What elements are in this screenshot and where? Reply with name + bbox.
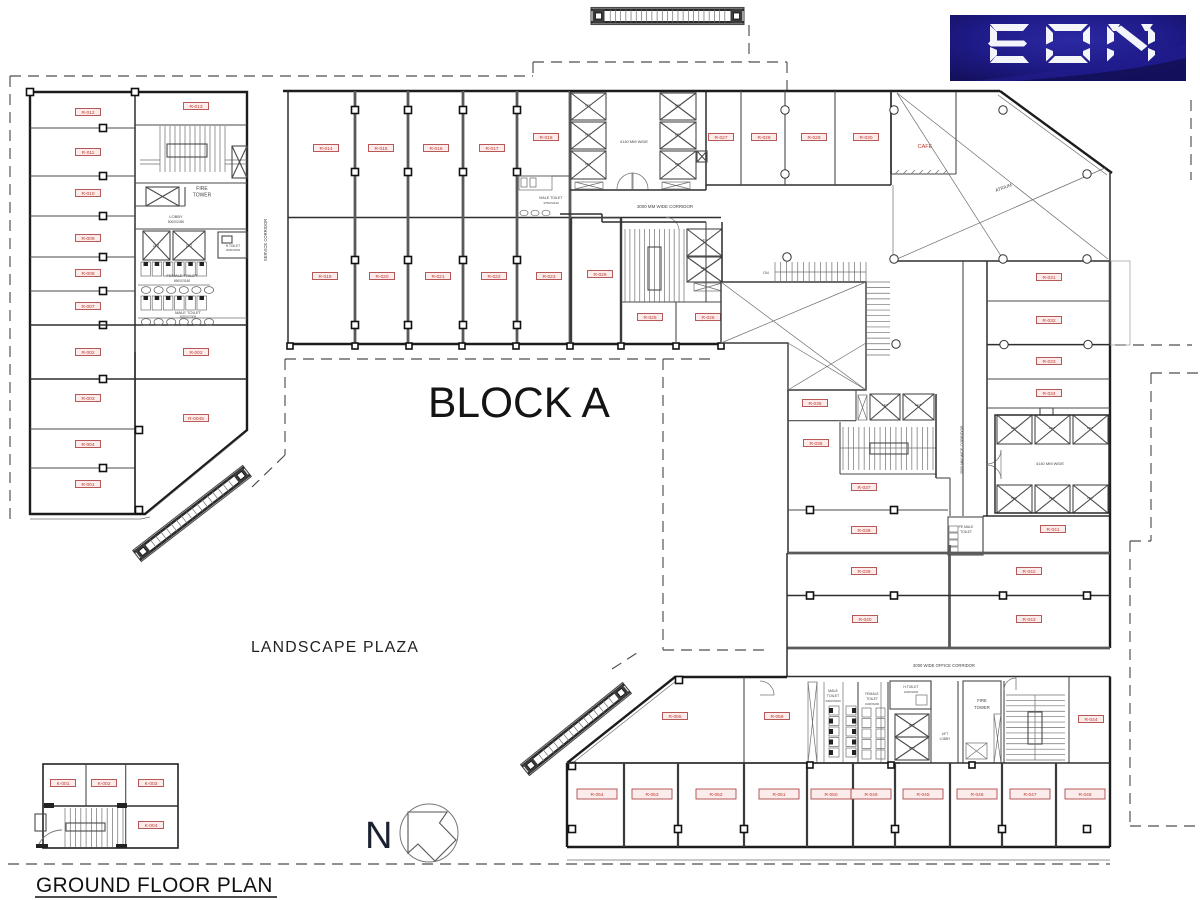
svg-text:R-054: R-054 bbox=[590, 792, 603, 798]
svg-text:R-014: R-014 bbox=[319, 146, 332, 152]
svg-text:4140 MM WIDE: 4140 MM WIDE bbox=[1036, 461, 1065, 466]
svg-text:SERVICE CORRIDOR: SERVICE CORRIDOR bbox=[263, 219, 268, 261]
svg-text:LOBBY: LOBBY bbox=[940, 737, 952, 741]
svg-text:R-017: R-017 bbox=[485, 146, 498, 152]
svg-text:MALE: MALE bbox=[828, 689, 838, 693]
svg-text:R-041: R-041 bbox=[1046, 527, 1059, 533]
svg-text:R-033: R-033 bbox=[1042, 359, 1055, 365]
svg-text:R-028: R-028 bbox=[757, 135, 770, 141]
svg-text:R-003: R-003 bbox=[81, 396, 94, 402]
svg-text:3100X6200: 3100X6200 bbox=[865, 702, 880, 706]
svg-text:3000 WIDE OFFICE CORRIDOR: 3000 WIDE OFFICE CORRIDOR bbox=[913, 663, 975, 668]
svg-text:R-019: R-019 bbox=[318, 274, 331, 280]
svg-text:FIRE: FIRE bbox=[977, 698, 987, 703]
svg-text:LOBBY: LOBBY bbox=[169, 214, 183, 219]
svg-text:MALE TOILET: MALE TOILET bbox=[539, 196, 563, 200]
svg-text:LIFT: LIFT bbox=[701, 238, 707, 242]
svg-text:LIFT: LIFT bbox=[1011, 426, 1017, 430]
svg-text:R-052: R-052 bbox=[709, 792, 722, 798]
svg-text:LIFT: LIFT bbox=[942, 732, 949, 736]
svg-text:R-016: R-016 bbox=[429, 146, 442, 152]
svg-text:H.TOILET: H.TOILET bbox=[903, 685, 918, 689]
svg-text:LIFT: LIFT bbox=[915, 403, 921, 407]
svg-text:R-055: R-055 bbox=[668, 714, 681, 720]
svg-text:FIRE: FIRE bbox=[196, 186, 208, 192]
svg-text:R-010: R-010 bbox=[81, 191, 94, 197]
svg-text:R-043: R-043 bbox=[1022, 617, 1035, 623]
svg-text:3000 MM WIDE CORRIDOR: 3000 MM WIDE CORRIDOR bbox=[637, 204, 693, 209]
svg-text:R-009: R-009 bbox=[81, 236, 94, 242]
svg-text:R-049: R-049 bbox=[864, 792, 877, 798]
svg-text:R-048: R-048 bbox=[1078, 792, 1091, 798]
svg-text:6900X3160: 6900X3160 bbox=[174, 279, 191, 283]
svg-text:4750X2430: 4750X2430 bbox=[543, 201, 559, 205]
svg-text:R-026: R-026 bbox=[701, 315, 714, 321]
svg-text:3300X6200: 3300X6200 bbox=[825, 699, 841, 703]
svg-text:R-050: R-050 bbox=[824, 792, 837, 798]
svg-text:R-002: R-002 bbox=[81, 350, 94, 356]
svg-text:R-012: R-012 bbox=[81, 110, 94, 116]
svg-text:R-0045: R-0045 bbox=[188, 416, 204, 422]
svg-text:R-037: R-037 bbox=[857, 485, 870, 491]
svg-text:LIFT: LIFT bbox=[153, 244, 160, 248]
svg-text:LIFT: LIFT bbox=[1049, 496, 1055, 500]
svg-text:DN: DN bbox=[763, 271, 769, 275]
svg-text:R-042: R-042 bbox=[1022, 569, 1035, 575]
svg-text:R-032: R-032 bbox=[1042, 318, 1055, 324]
svg-text:LIFT: LIFT bbox=[675, 133, 681, 137]
svg-text:N: N bbox=[365, 815, 392, 857]
svg-text:TOILET: TOILET bbox=[866, 697, 878, 701]
svg-text:K-004: K-004 bbox=[145, 823, 158, 829]
svg-text:4140 MM WIDE: 4140 MM WIDE bbox=[620, 139, 649, 144]
svg-text:R-023: R-023 bbox=[542, 274, 555, 280]
svg-text:LIFT: LIFT bbox=[675, 104, 681, 108]
svg-text:LIFT: LIFT bbox=[909, 723, 915, 727]
svg-text:R-035: R-035 bbox=[808, 401, 821, 407]
svg-text:LIFT: LIFT bbox=[585, 133, 591, 137]
svg-text:K-002: K-002 bbox=[98, 781, 111, 787]
svg-text:R-015: R-015 bbox=[374, 146, 387, 152]
svg-text:R-030: R-030 bbox=[859, 135, 872, 141]
svg-text:R-013: R-013 bbox=[189, 104, 202, 110]
svg-text:FEMALE: FEMALE bbox=[865, 692, 879, 696]
svg-text:LIFT: LIFT bbox=[1049, 426, 1055, 430]
svg-text:GROUND FLOOR PLAN: GROUND FLOOR PLAN bbox=[36, 874, 273, 897]
svg-text:R-022: R-022 bbox=[487, 274, 500, 280]
svg-text:R-031: R-031 bbox=[1042, 275, 1055, 281]
svg-text:LIFT: LIFT bbox=[1011, 496, 1017, 500]
svg-text:LIFT: LIFT bbox=[882, 403, 888, 407]
svg-text:LIFT: LIFT bbox=[585, 104, 591, 108]
svg-text:LIFT: LIFT bbox=[1087, 426, 1093, 430]
svg-text:R-040: R-040 bbox=[858, 617, 871, 623]
svg-text:R-027: R-027 bbox=[714, 135, 727, 141]
svg-text:BLOCK A: BLOCK A bbox=[428, 380, 611, 427]
svg-text:R-038: R-038 bbox=[857, 528, 870, 534]
svg-text:TOWER: TOWER bbox=[193, 193, 212, 199]
svg-text:PE MALE: PE MALE bbox=[959, 525, 974, 529]
svg-text:R-039: R-039 bbox=[857, 569, 870, 575]
svg-text:LIFT: LIFT bbox=[675, 162, 681, 166]
svg-text:R-044: R-044 bbox=[1084, 717, 1097, 723]
svg-text:R-036: R-036 bbox=[809, 441, 822, 447]
svg-text:FEMALE TOILET: FEMALE TOILET bbox=[167, 273, 199, 278]
svg-text:LIFT: LIFT bbox=[909, 746, 915, 750]
svg-text:2430X2000: 2430X2000 bbox=[904, 690, 919, 694]
svg-text:LIFT: LIFT bbox=[186, 244, 193, 248]
svg-text:TOILET: TOILET bbox=[827, 694, 840, 698]
svg-text:R-004: R-004 bbox=[81, 442, 94, 448]
svg-text:R-046: R-046 bbox=[970, 792, 983, 798]
svg-text:K-003: K-003 bbox=[145, 781, 158, 787]
svg-text:LANDSCAPE PLAZA: LANDSCAPE PLAZA bbox=[251, 639, 419, 656]
svg-text:2000X2630: 2000X2630 bbox=[226, 248, 241, 252]
svg-text:LIFT: LIFT bbox=[701, 266, 707, 270]
svg-text:TOILET: TOILET bbox=[960, 530, 972, 534]
svg-text:K-001: K-001 bbox=[57, 781, 70, 787]
svg-text:R-002: R-002 bbox=[189, 350, 202, 356]
svg-text:R-029: R-029 bbox=[807, 135, 820, 141]
svg-text:R-021: R-021 bbox=[431, 274, 444, 280]
svg-text:R-026: R-026 bbox=[593, 272, 606, 278]
svg-text:R-053: R-053 bbox=[645, 792, 658, 798]
svg-text:LIFT: LIFT bbox=[585, 162, 591, 166]
svg-text:R-045: R-045 bbox=[916, 792, 929, 798]
svg-text:R-034: R-034 bbox=[1042, 391, 1055, 397]
svg-text:LIFT: LIFT bbox=[1087, 496, 1093, 500]
svg-text:R-007: R-007 bbox=[81, 304, 94, 310]
svg-text:R-051: R-051 bbox=[772, 792, 785, 798]
svg-text:5000X2450: 5000X2450 bbox=[168, 220, 185, 224]
svg-text:TOWER: TOWER bbox=[974, 705, 990, 710]
svg-text:R-020: R-020 bbox=[375, 274, 388, 280]
svg-text:R-056: R-056 bbox=[770, 714, 783, 720]
svg-text:R-047: R-047 bbox=[1023, 792, 1036, 798]
svg-text:R-008: R-008 bbox=[81, 271, 94, 277]
svg-text:R-018: R-018 bbox=[539, 135, 552, 141]
svg-text:R-025: R-025 bbox=[643, 315, 656, 321]
svg-text:R-001: R-001 bbox=[81, 482, 94, 488]
svg-text:R-011: R-011 bbox=[82, 150, 95, 156]
